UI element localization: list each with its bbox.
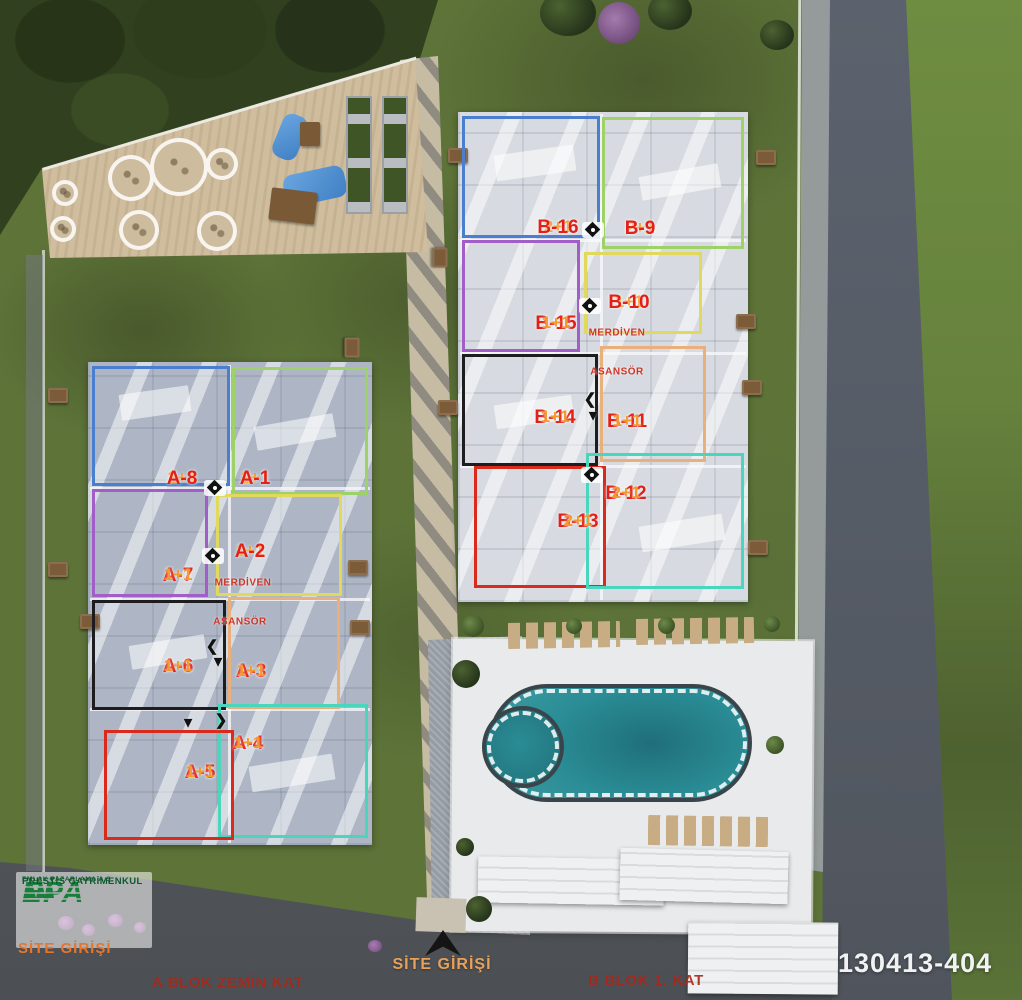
unit-outline-a5 [104, 730, 234, 840]
chevron-left-icon: ❮ [206, 637, 219, 655]
reference-number: 130413-404 [838, 948, 992, 979]
unit-outline-a8 [92, 366, 230, 486]
compass-icon [582, 222, 604, 238]
picnic-table [48, 562, 68, 577]
compass-icon [202, 548, 224, 564]
unit-type: 1+1 [541, 408, 570, 425]
unit-outline-b9 [602, 117, 744, 249]
kids-pool [482, 706, 564, 788]
deck-bush [566, 618, 582, 634]
picnic-table [348, 560, 368, 575]
elevator-label-b: ASANSÖR [590, 367, 644, 378]
deck-bush [462, 615, 484, 637]
unit-type: 1+1 [237, 662, 266, 679]
site-entrance-caption: SİTE GİRİŞİ [392, 956, 491, 974]
site-plan-render: 2+1 A-8 2+1 A-1 A-7 1+1 1+1 A-2 A-6 1+1 … [0, 0, 1022, 1000]
compass-icon [204, 480, 226, 496]
unit-id: B-10 [608, 293, 649, 312]
picnic-table [756, 150, 776, 165]
chevron-down-icon: ▼ [586, 408, 601, 425]
fitness-circle [150, 138, 208, 196]
unit-type: 1+1 [164, 657, 193, 674]
picnic-table [742, 380, 762, 395]
unit-id: A-2 [235, 542, 266, 561]
picnic-table [736, 314, 756, 329]
fitness-circle [206, 148, 238, 180]
deck-bush [456, 838, 474, 856]
unit-outline-a4 [218, 704, 368, 838]
compass-icon [581, 467, 603, 483]
picnic-table [438, 400, 458, 415]
unit-id: A-8 [167, 469, 198, 488]
agency-logo: EPA EMLAK PAZARLAMA A.Ş. PRESTİS GAYRİME… [16, 872, 152, 948]
deck-bush [764, 616, 780, 632]
unit-type: 1+1 [542, 314, 571, 331]
bench-planter [346, 96, 372, 214]
picnic-table [433, 248, 448, 268]
bench-planter [382, 96, 408, 214]
stairs-label-a: MERDİVEN [215, 578, 272, 589]
b-block-floor-caption: B BLOK 1. KAT [588, 972, 704, 989]
picnic-table [48, 388, 68, 403]
picnic-table [350, 620, 370, 635]
unit-outline-b15 [462, 240, 580, 352]
unit-outline-b14 [462, 354, 598, 466]
compass-icon [579, 298, 601, 314]
unit-type: 1+1 [186, 763, 215, 780]
unit-id: B-9 [625, 219, 656, 238]
unit-outline-a6 [92, 600, 226, 710]
unit-outline-b12 [586, 453, 744, 589]
picnic-table [345, 338, 360, 358]
a-block-floor-caption: A BLOK ZEMİN KAT [152, 974, 303, 991]
playground-structure [300, 122, 320, 146]
fitness-circle [119, 210, 159, 250]
wall-shadow-left [26, 255, 43, 871]
unit-outline-b16 [462, 116, 600, 238]
playground-structure [268, 187, 318, 224]
stairs-label-b: MERDİVEN [589, 328, 646, 339]
unit-type: 1+1 [613, 412, 642, 429]
deck-bush [658, 617, 675, 634]
logo-subtitle-2: PRESTİS GAYRİMENKUL [22, 876, 143, 887]
chevron-right-icon: ❯ [215, 711, 228, 729]
deck-bush [766, 736, 784, 754]
fitness-circle [52, 180, 78, 206]
unit-type: 2+1 [564, 512, 593, 529]
palm-tree [452, 660, 480, 688]
chevron-down-icon: ▼ [211, 654, 226, 671]
tree [466, 896, 492, 922]
site-entrance-caption-left: SİTE GİRİŞİ [18, 940, 112, 957]
unit-id: B-16 [537, 218, 578, 237]
unit-type: 2+1 [612, 484, 641, 501]
sun-loungers [636, 617, 754, 645]
chevron-down-icon: ▼ [181, 715, 196, 732]
unit-type: 1+1 [164, 566, 193, 583]
sun-loungers [648, 815, 769, 847]
tree [760, 20, 794, 50]
entrance-walkway [415, 897, 466, 933]
fitness-circle [108, 155, 154, 201]
fitness-circle [197, 211, 237, 251]
unit-id: A-1 [240, 469, 271, 488]
fitness-circle [50, 216, 76, 242]
unit-type: 1+1 [234, 734, 263, 751]
sun-loungers [508, 621, 620, 649]
flower-bush [368, 940, 382, 952]
flowering-tree [598, 2, 640, 44]
picnic-table [748, 540, 768, 555]
elevator-label-a: ASANSÖR [213, 617, 267, 628]
unit-outline-a3 [228, 597, 340, 709]
cabana-roof [688, 921, 839, 994]
chevron-left-icon: ❮ [584, 390, 597, 408]
unit-outline-b11 [600, 346, 706, 462]
cabana-roof [619, 848, 788, 904]
